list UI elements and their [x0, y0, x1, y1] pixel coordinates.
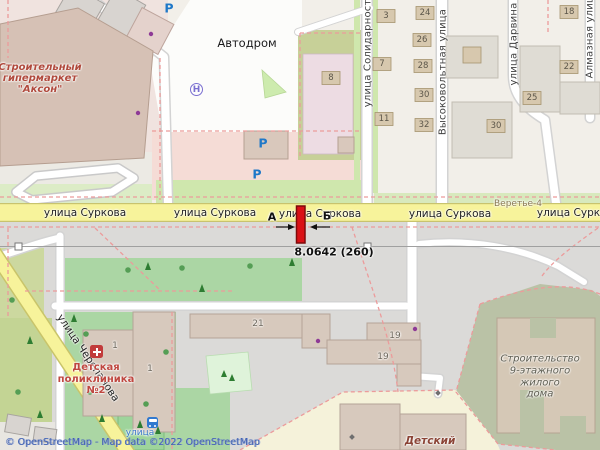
measurement-overlay [0, 0, 600, 450]
arrow-a [276, 224, 295, 230]
arrow-b [310, 224, 330, 230]
measure-marker[interactable] [297, 206, 306, 243]
map-viewport[interactable]: улица Суркова улица Суркова улица Сурков… [0, 0, 600, 450]
map-attribution[interactable]: © OpenStreetMap - Map data ©2022 OpenStr… [5, 437, 260, 448]
measure-handle-right[interactable] [364, 243, 371, 250]
measure-handle-left[interactable] [15, 243, 22, 250]
